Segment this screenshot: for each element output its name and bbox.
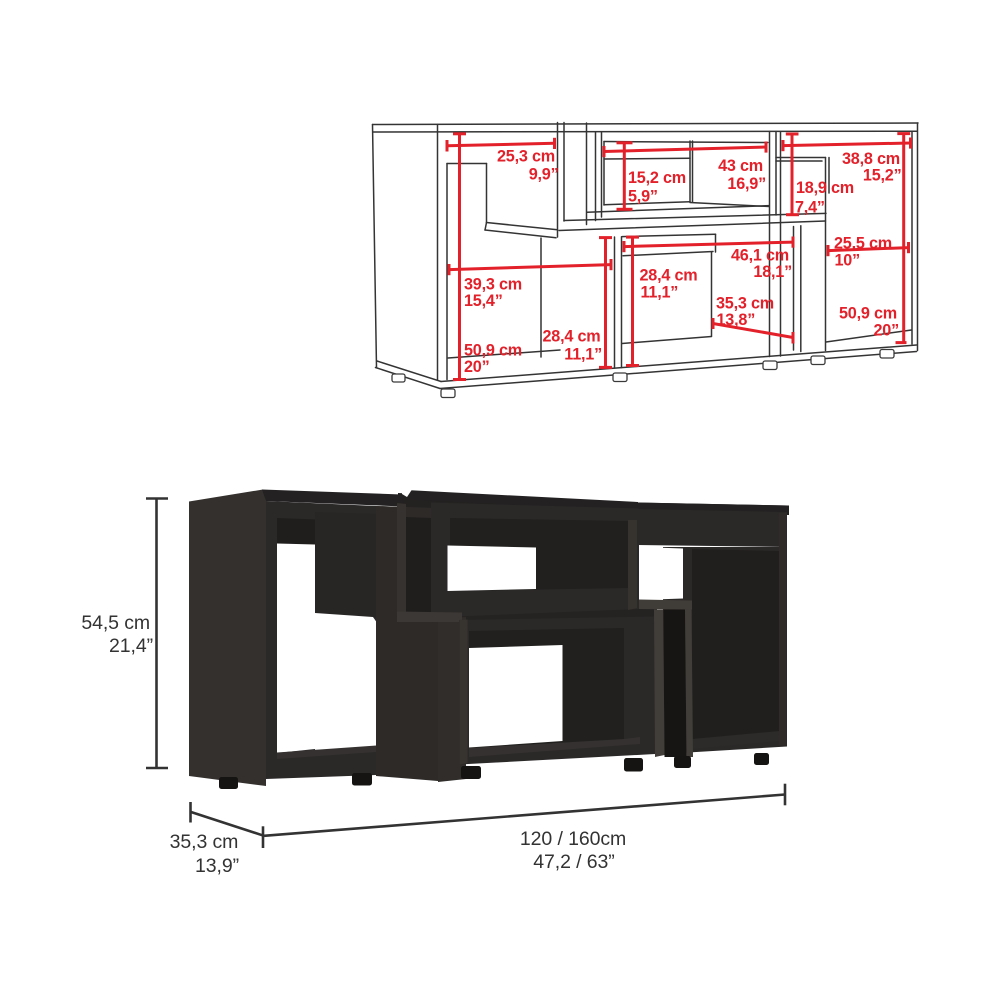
svg-text:13,9”: 13,9” <box>195 855 239 877</box>
svg-text:46,1 cm: 46,1 cm <box>731 247 789 265</box>
svg-text:15,4”: 15,4” <box>464 292 503 310</box>
svg-text:28,4 cm: 28,4 cm <box>640 267 698 285</box>
svg-text:35,3 cm: 35,3 cm <box>716 295 774 313</box>
svg-text:28,4 cm: 28,4 cm <box>543 328 601 346</box>
svg-text:10”: 10” <box>835 252 861 270</box>
svg-text:15,2”: 15,2” <box>863 167 902 185</box>
svg-text:38,8 cm: 38,8 cm <box>842 150 900 168</box>
svg-text:18,1”: 18,1” <box>753 263 792 281</box>
svg-text:21,4”: 21,4” <box>109 635 153 657</box>
svg-text:25,3 cm: 25,3 cm <box>497 148 555 166</box>
svg-text:25,5 cm: 25,5 cm <box>834 235 892 253</box>
svg-text:11,1”: 11,1” <box>564 346 602 364</box>
svg-text:54,5 cm: 54,5 cm <box>81 612 150 634</box>
svg-text:47,2 / 63”: 47,2 / 63” <box>533 851 614 873</box>
svg-text:39,3 cm: 39,3 cm <box>464 276 522 294</box>
svg-text:16,9”: 16,9” <box>727 175 766 193</box>
svg-text:35,3 cm: 35,3 cm <box>170 831 239 853</box>
svg-text:50,9 cm: 50,9 cm <box>464 342 522 360</box>
svg-text:120 / 160cm: 120 / 160cm <box>520 828 626 850</box>
svg-text:9,9”: 9,9” <box>529 166 559 184</box>
svg-text:7,4”: 7,4” <box>795 199 825 217</box>
svg-text:20”: 20” <box>874 322 900 340</box>
svg-text:20”: 20” <box>464 358 490 376</box>
svg-text:50,9 cm: 50,9 cm <box>839 305 897 323</box>
svg-text:43 cm: 43 cm <box>718 157 763 175</box>
svg-text:5,9”: 5,9” <box>628 188 658 206</box>
svg-text:11,1”: 11,1” <box>641 284 679 302</box>
svg-text:18,9 cm: 18,9 cm <box>796 179 854 197</box>
svg-text:15,2 cm: 15,2 cm <box>628 169 686 187</box>
svg-text:13,8”: 13,8” <box>717 311 756 329</box>
